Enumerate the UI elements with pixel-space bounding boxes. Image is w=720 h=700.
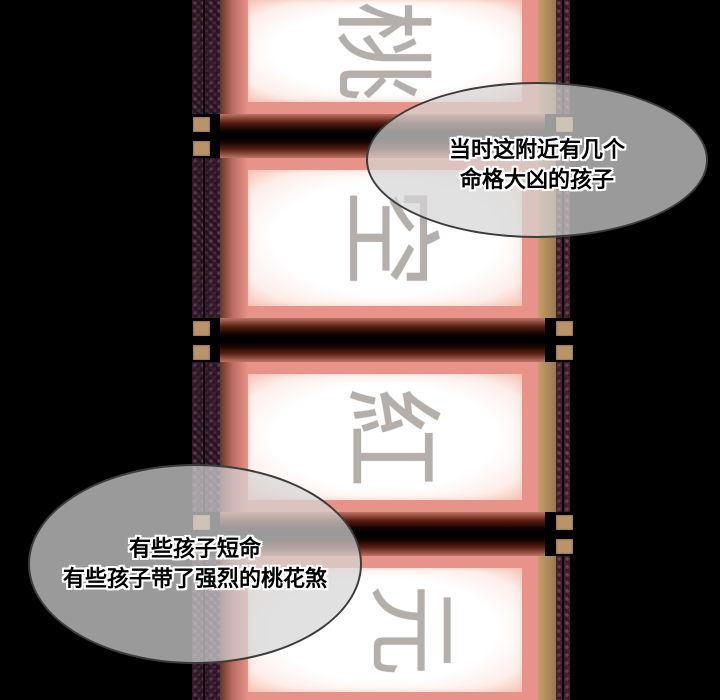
speech-bubble-bottom: 有些孩子短命 有些孩子带了强烈的桃花煞: [28, 464, 362, 664]
scroll-knob: [193, 117, 210, 132]
calligraphy-glyph: 桃: [331, 1, 431, 101]
scroll-separator: [192, 318, 570, 362]
panel-right-border: [556, 362, 570, 512]
calligraphy-glyph: 紅: [340, 387, 440, 487]
panel-left-border: [192, 0, 220, 114]
speech-bubble-line: 有些孩子带了强烈的桃花煞: [63, 564, 327, 594]
scroll-knob: [193, 321, 210, 336]
scroll-knob: [193, 141, 210, 156]
scroll-knob: [193, 345, 210, 360]
scroll-knob: [556, 345, 573, 360]
panel-tan-strip: [538, 556, 556, 700]
speech-bubble-line: 命格大凶的孩子: [460, 165, 614, 195]
panel-tan-strip: [538, 362, 556, 512]
calligraphy-glyph: 元: [365, 584, 457, 676]
scroll-knob: [556, 539, 573, 554]
comic-page: 桃 空: [0, 0, 720, 700]
speech-bubble-line: 当时这附近有几个: [449, 135, 625, 165]
scroll-knob: [556, 321, 573, 336]
speech-bubble-top: 当时这附近有几个 命格大凶的孩子: [366, 82, 708, 238]
panel-right-border: [556, 556, 570, 700]
speech-bubble-line: 有些孩子短命: [129, 534, 261, 564]
separator-band: [220, 318, 545, 362]
panel-left-border: [192, 158, 220, 318]
scroll-knob: [556, 515, 573, 530]
